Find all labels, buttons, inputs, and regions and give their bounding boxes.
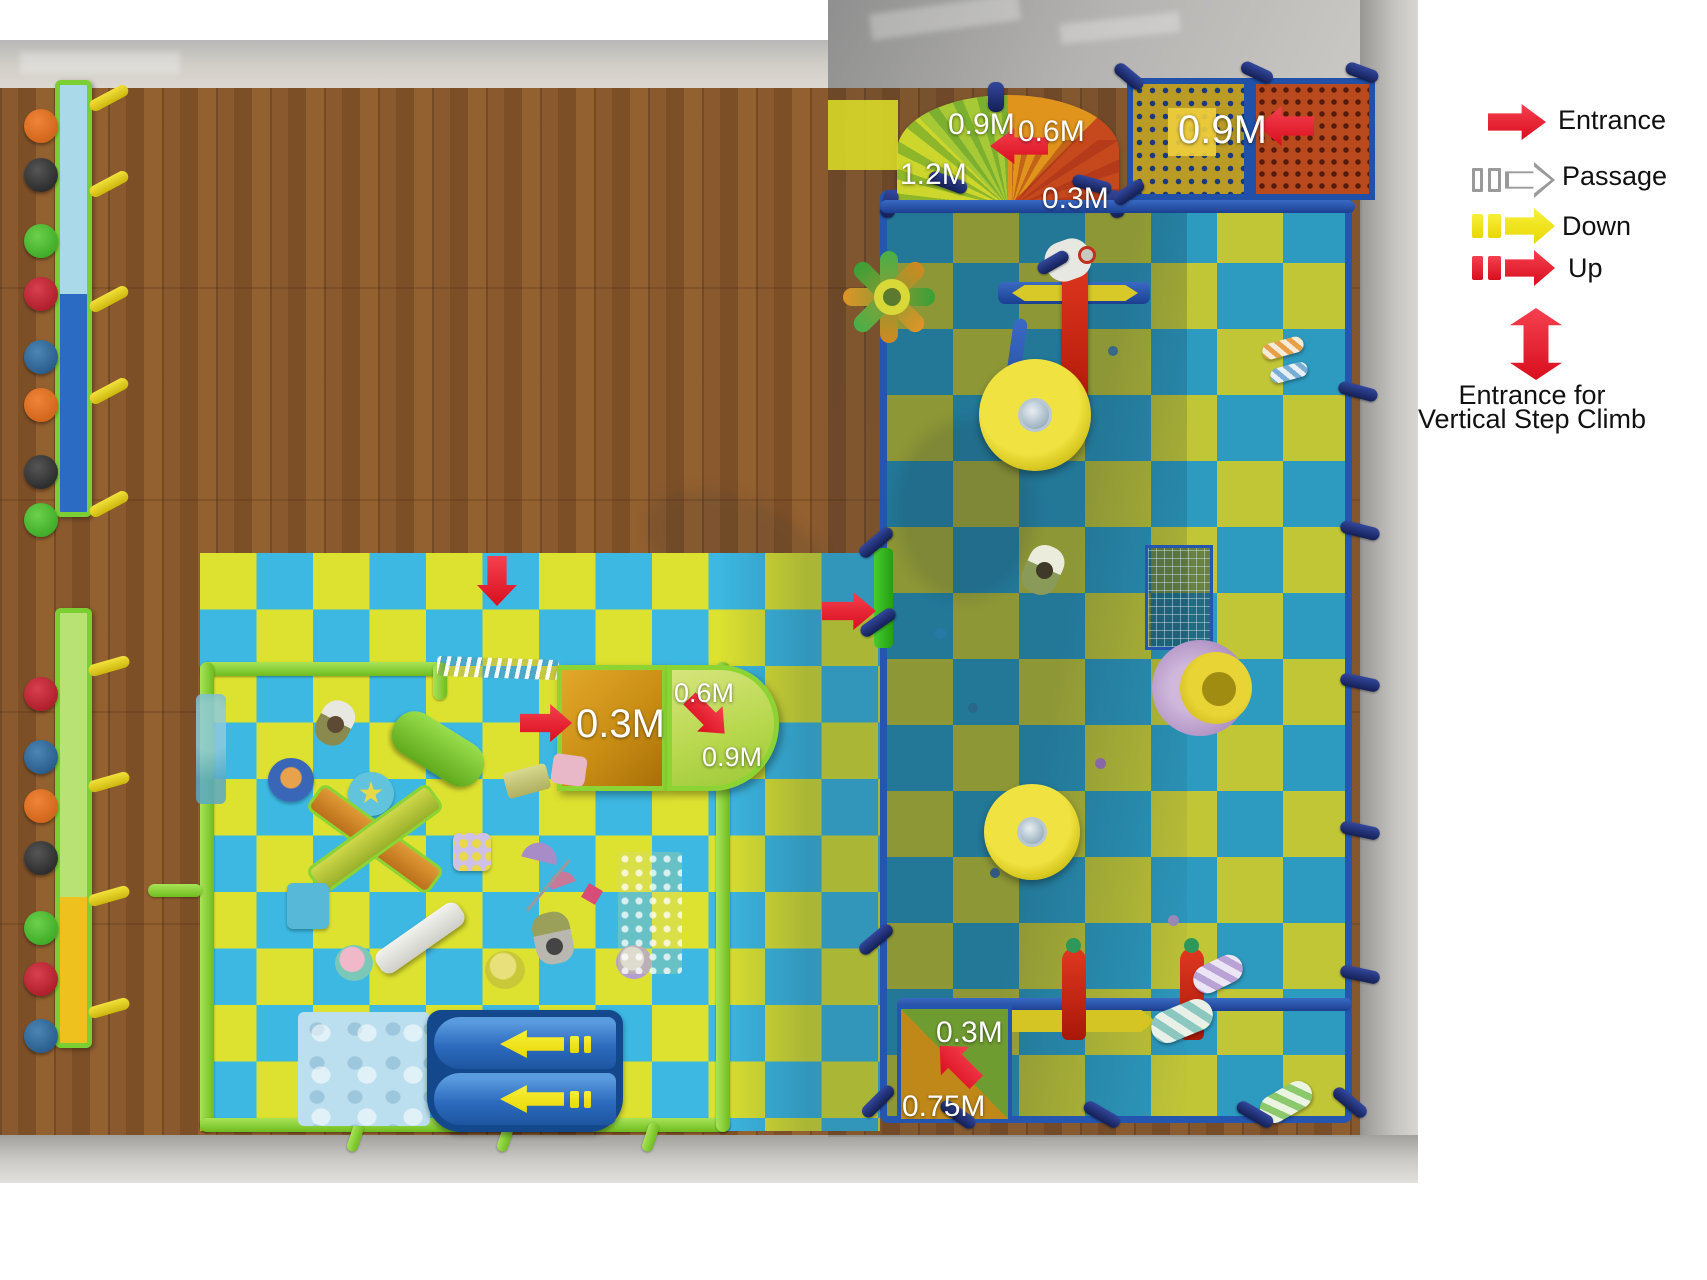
stool-red bbox=[24, 962, 58, 996]
stool-orange bbox=[24, 109, 58, 143]
stool-blue bbox=[24, 1019, 58, 1053]
legend-entrance-label: Entrance bbox=[1558, 106, 1666, 136]
bottom-wall bbox=[0, 1135, 1418, 1183]
stool-red bbox=[24, 277, 58, 311]
legend-passage-label: Passage bbox=[1562, 162, 1667, 192]
spinner-hub bbox=[1018, 398, 1052, 432]
legend-down-label: Down bbox=[1562, 212, 1631, 242]
child-figure-head bbox=[1078, 246, 1096, 264]
star-climber-ring bbox=[874, 279, 910, 315]
legend-vertical-climb-arrow-icon bbox=[1510, 308, 1562, 380]
play-panel bbox=[196, 694, 226, 804]
slide-down-dash bbox=[584, 1036, 591, 1053]
legend-passage-dash-icon bbox=[1472, 168, 1483, 192]
picture-block bbox=[287, 883, 329, 929]
stool-black bbox=[24, 455, 58, 489]
yellow-pad bbox=[828, 100, 898, 170]
play-ball bbox=[1095, 758, 1106, 769]
stool-green bbox=[24, 911, 58, 945]
slide-down-dash bbox=[584, 1091, 591, 1108]
playground-floor-plan: ★ bbox=[0, 0, 1707, 1280]
gate-bar bbox=[874, 548, 893, 648]
main-mat-shadow bbox=[887, 197, 1187, 1116]
legend-passage-arrow-fill bbox=[1509, 166, 1551, 194]
height-label: 0.6M bbox=[1018, 117, 1085, 147]
dotted-climb-panel bbox=[618, 852, 682, 974]
child-figure-head bbox=[1036, 562, 1053, 579]
height-label: 1.2M bbox=[900, 160, 967, 190]
legend-passage-dash-icon bbox=[1488, 168, 1501, 192]
wall-highlight bbox=[20, 52, 180, 74]
legend-up-dash-icon bbox=[1488, 256, 1501, 280]
play-ball bbox=[1108, 346, 1118, 356]
rope-bridge bbox=[437, 656, 560, 680]
bench-north bbox=[55, 80, 92, 517]
stool-black bbox=[24, 841, 58, 875]
barrel-roller-hole bbox=[1202, 672, 1236, 706]
net-panel-red bbox=[1250, 78, 1375, 200]
punch-bag bbox=[1062, 948, 1086, 1040]
fence-top-bar bbox=[200, 662, 447, 676]
soft-die-block bbox=[453, 833, 491, 871]
height-label: 0.9M bbox=[702, 744, 762, 771]
height-label: 0.6M bbox=[674, 680, 734, 707]
stool-black bbox=[24, 158, 58, 192]
stool-orange bbox=[24, 789, 58, 823]
toddler-mat-shadow bbox=[718, 553, 880, 1131]
height-label: 0.9M bbox=[948, 110, 1015, 140]
legend-up-dash-icon bbox=[1472, 256, 1483, 280]
legend-up-label: Up bbox=[1568, 254, 1603, 284]
play-ball bbox=[968, 703, 978, 713]
legend-down-dash-icon bbox=[1488, 214, 1501, 238]
stool-red bbox=[24, 677, 58, 711]
toy-cube bbox=[550, 753, 588, 787]
slide-down-dash bbox=[570, 1091, 579, 1108]
round-cushion bbox=[335, 945, 373, 981]
slide-down-dash bbox=[570, 1036, 579, 1053]
play-ball bbox=[990, 868, 1000, 878]
punch-bag-cap bbox=[1066, 938, 1081, 953]
height-label: 0.3M bbox=[936, 1018, 1003, 1048]
legend-down-arrow-icon bbox=[1505, 208, 1555, 244]
crab-cushion bbox=[268, 758, 314, 802]
legend-vertical-climb-label-2: Vertical Step Climb bbox=[1407, 405, 1657, 435]
height-label: 0.3M bbox=[1042, 184, 1109, 214]
net-goal bbox=[1145, 545, 1213, 650]
ball-pit bbox=[298, 1012, 430, 1126]
height-label: 0.9M bbox=[1178, 110, 1267, 150]
stool-blue bbox=[24, 340, 58, 374]
bench-south bbox=[55, 608, 92, 1048]
legend-up-arrow-icon bbox=[1505, 250, 1555, 286]
punch-bag-cap bbox=[1184, 938, 1199, 953]
stool-green bbox=[24, 503, 58, 537]
height-label: 0.3M bbox=[576, 704, 665, 744]
fence-side-tube bbox=[148, 884, 202, 897]
legend-entrance-arrow-icon bbox=[1488, 104, 1546, 140]
round-cushion bbox=[485, 951, 525, 989]
stool-orange bbox=[24, 388, 58, 422]
play-ball bbox=[935, 628, 946, 639]
stool-blue bbox=[24, 740, 58, 774]
stool-green bbox=[24, 224, 58, 258]
child-on-swing-head bbox=[546, 938, 563, 955]
spinner-hub bbox=[1017, 817, 1047, 847]
height-label: 0.75M bbox=[902, 1092, 985, 1122]
legend-down-dash-icon bbox=[1472, 214, 1483, 238]
play-ball bbox=[1168, 915, 1179, 926]
child-figure-head bbox=[327, 716, 344, 733]
